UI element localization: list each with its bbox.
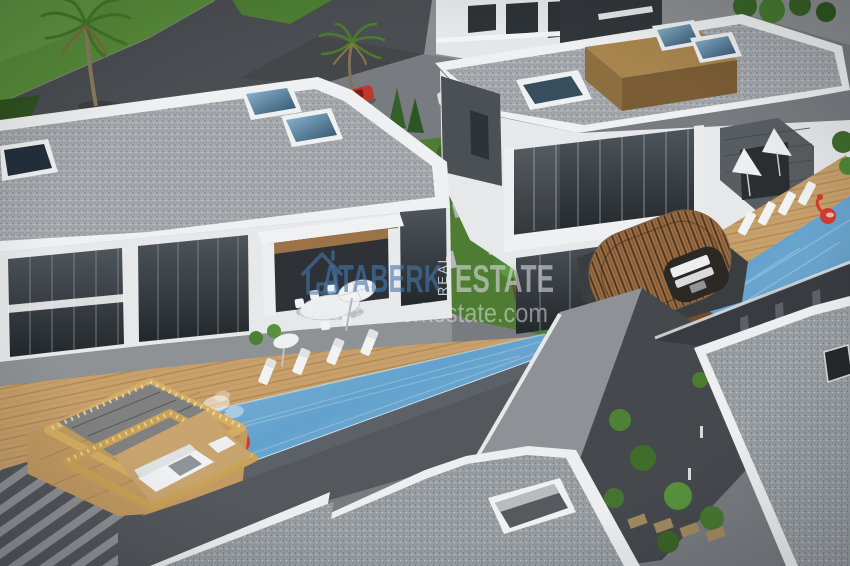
render-canvas: ATABERK REAL ESTATE www.ataberkestate.co…: [0, 0, 850, 566]
watermark: ATABERK REAL ESTATE www.ataberkestate.co…: [297, 252, 554, 328]
aerial-villa-render: ATABERK REAL ESTATE www.ataberkestate.co…: [0, 0, 850, 566]
watermark-brand-first: ATABERK: [322, 258, 442, 301]
watermark-brand-second: ESTATE: [455, 258, 554, 301]
watermark-website: www.ataberkestate.com: [297, 298, 548, 328]
watermark-brand-vertical: REAL: [436, 254, 450, 296]
